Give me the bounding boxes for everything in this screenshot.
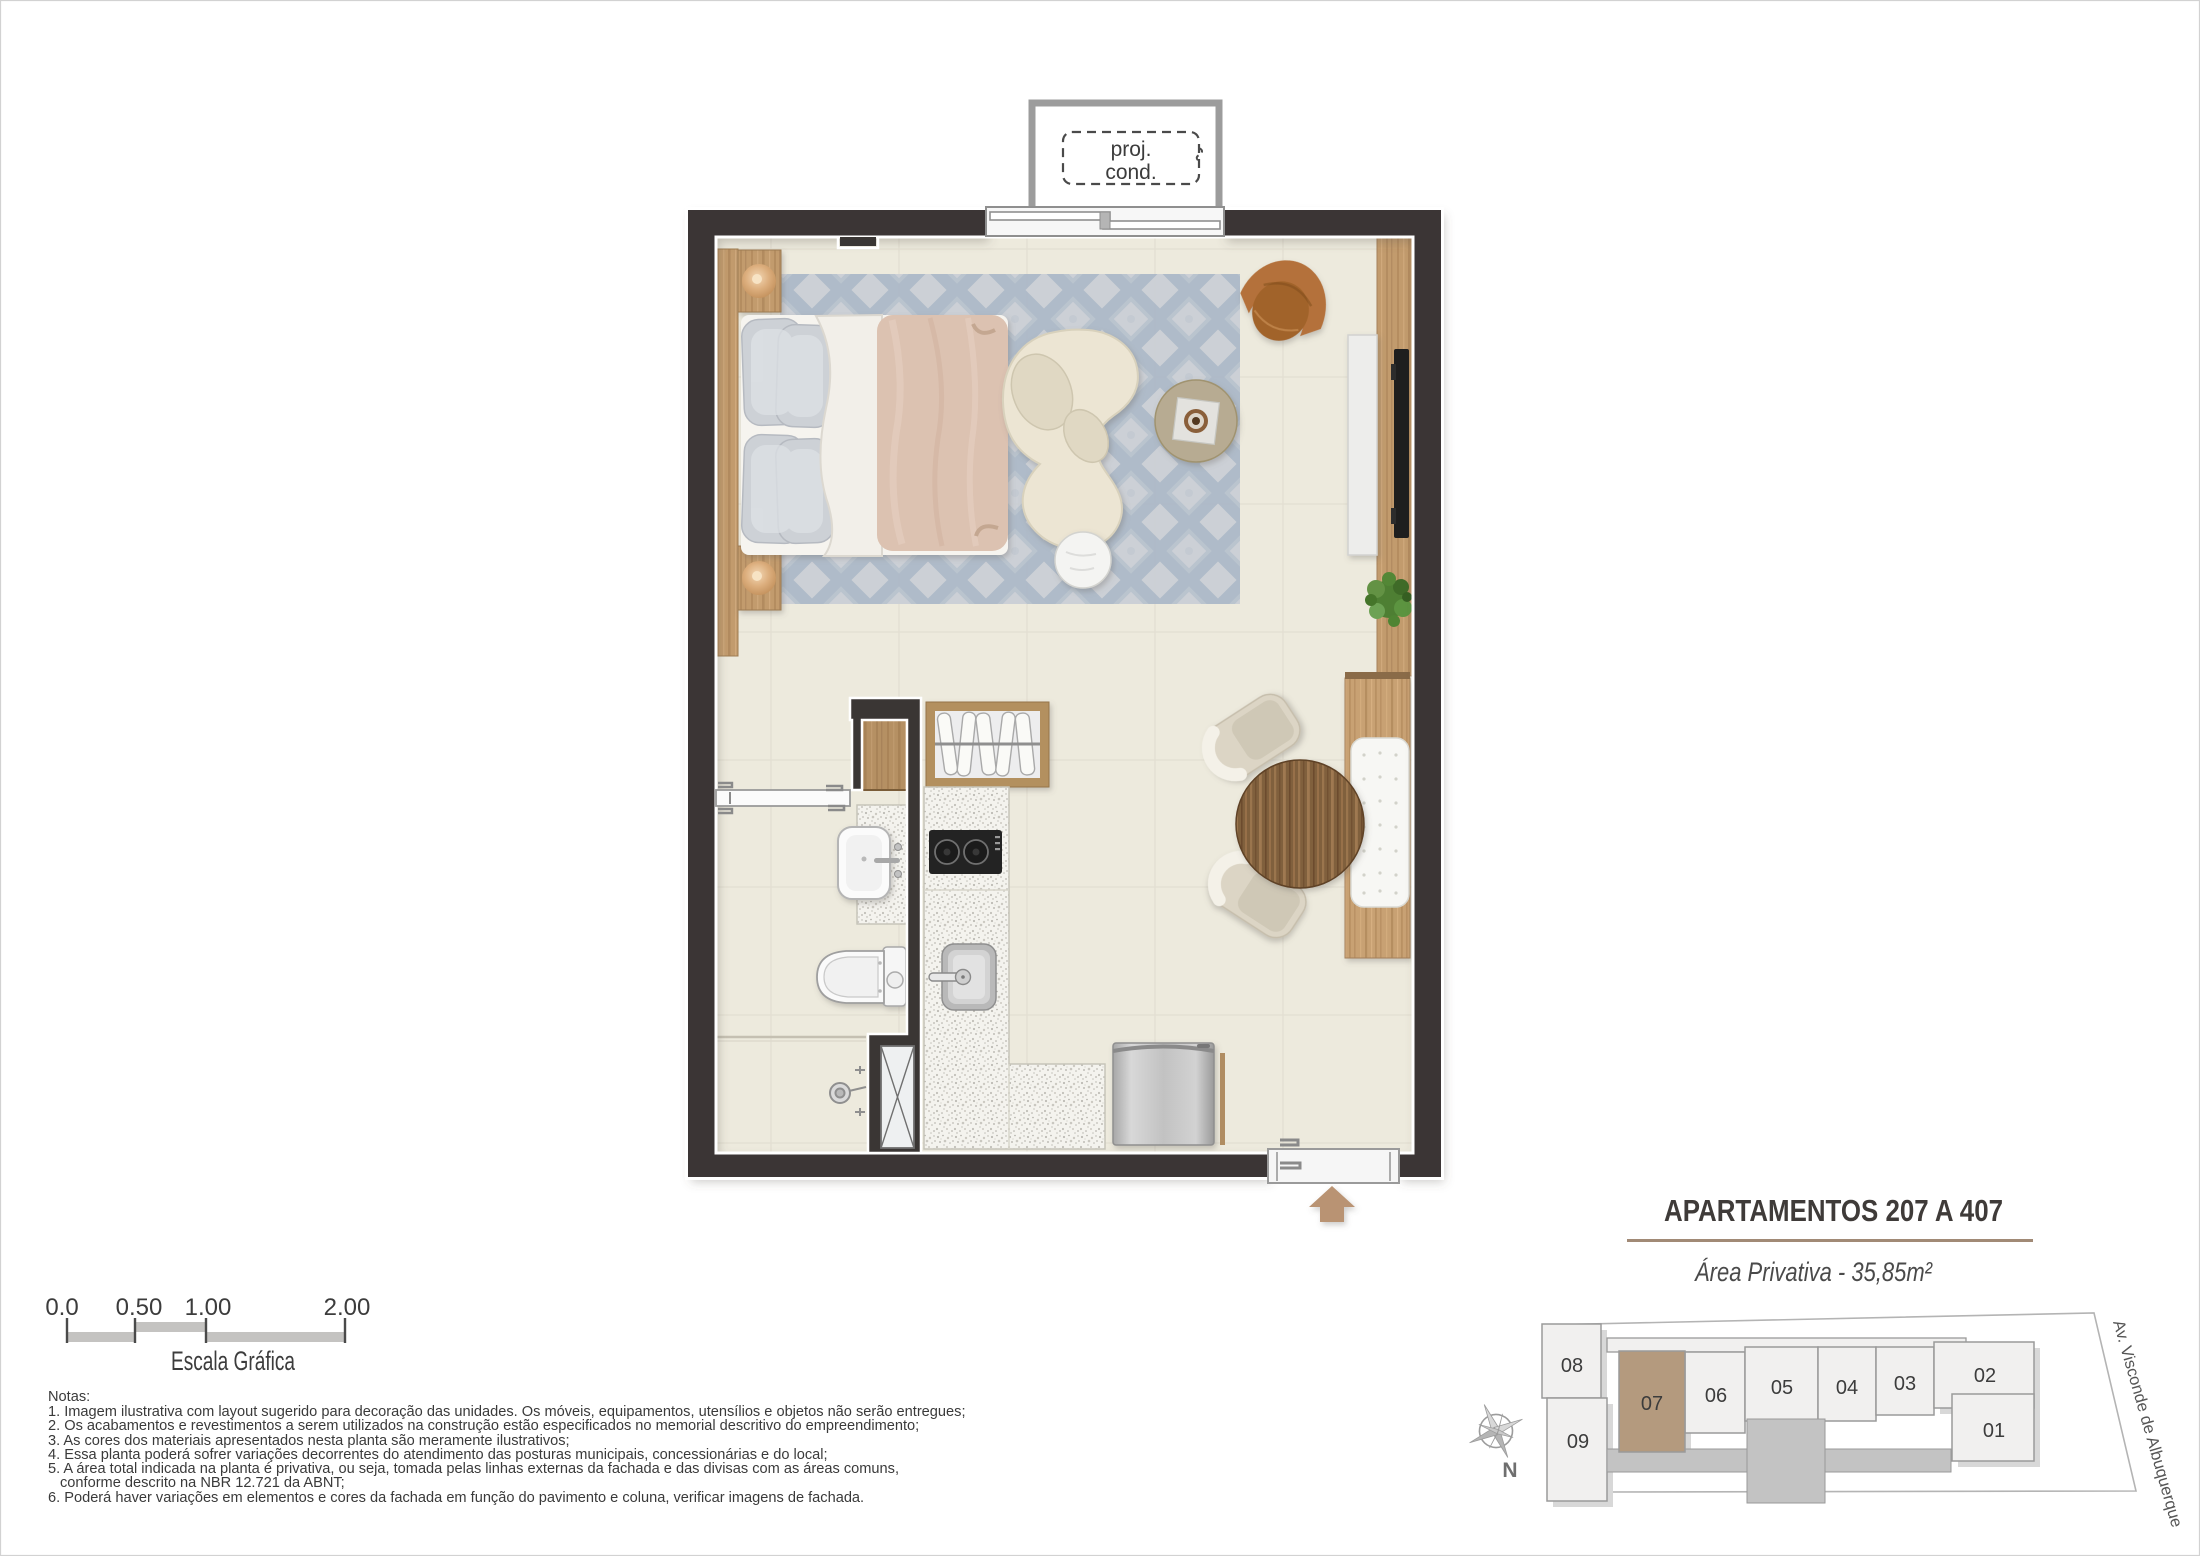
svg-text:03: 03 xyxy=(1894,1373,1916,1395)
svg-text:05: 05 xyxy=(1771,1377,1793,1399)
svg-text:07: 07 xyxy=(1641,1393,1663,1415)
svg-text:06: 06 xyxy=(1705,1385,1727,1407)
svg-text:04: 04 xyxy=(1836,1377,1858,1399)
svg-text:2.00: 2.00 xyxy=(324,1294,371,1321)
svg-text:cond.: cond. xyxy=(1105,161,1156,184)
svg-text:01: 01 xyxy=(1983,1420,2005,1442)
svg-text:1.00: 1.00 xyxy=(185,1294,232,1321)
svg-text:0.0: 0.0 xyxy=(45,1294,78,1321)
svg-text:Escala Gráfica: Escala Gráfica xyxy=(171,1346,296,1376)
svg-text:09: 09 xyxy=(1567,1431,1589,1453)
svg-text:6. Poderá haver variações em e: 6. Poderá haver variações em elementos e… xyxy=(48,1490,864,1506)
svg-text:2. Os acabamentos e revestimen: 2. Os acabamentos e revestimentos a sere… xyxy=(48,1418,919,1434)
svg-text:Área Privativa - 35,85m²: Área Privativa - 35,85m² xyxy=(1693,1257,1932,1287)
svg-text:Notas:: Notas: xyxy=(48,1389,90,1405)
svg-text:N: N xyxy=(1502,1459,1517,1482)
svg-text:0.50: 0.50 xyxy=(116,1294,163,1321)
svg-text:conforme descrito na NBR 12.72: conforme descrito na NBR 12.721 da ABNT; xyxy=(60,1475,345,1491)
svg-text:proj.: proj. xyxy=(1111,138,1152,161)
svg-text:02: 02 xyxy=(1974,1365,1996,1387)
svg-text:APARTAMENTOS 207 A 407: APARTAMENTOS 207 A 407 xyxy=(1664,1193,2003,1228)
svg-text:08: 08 xyxy=(1561,1355,1583,1377)
